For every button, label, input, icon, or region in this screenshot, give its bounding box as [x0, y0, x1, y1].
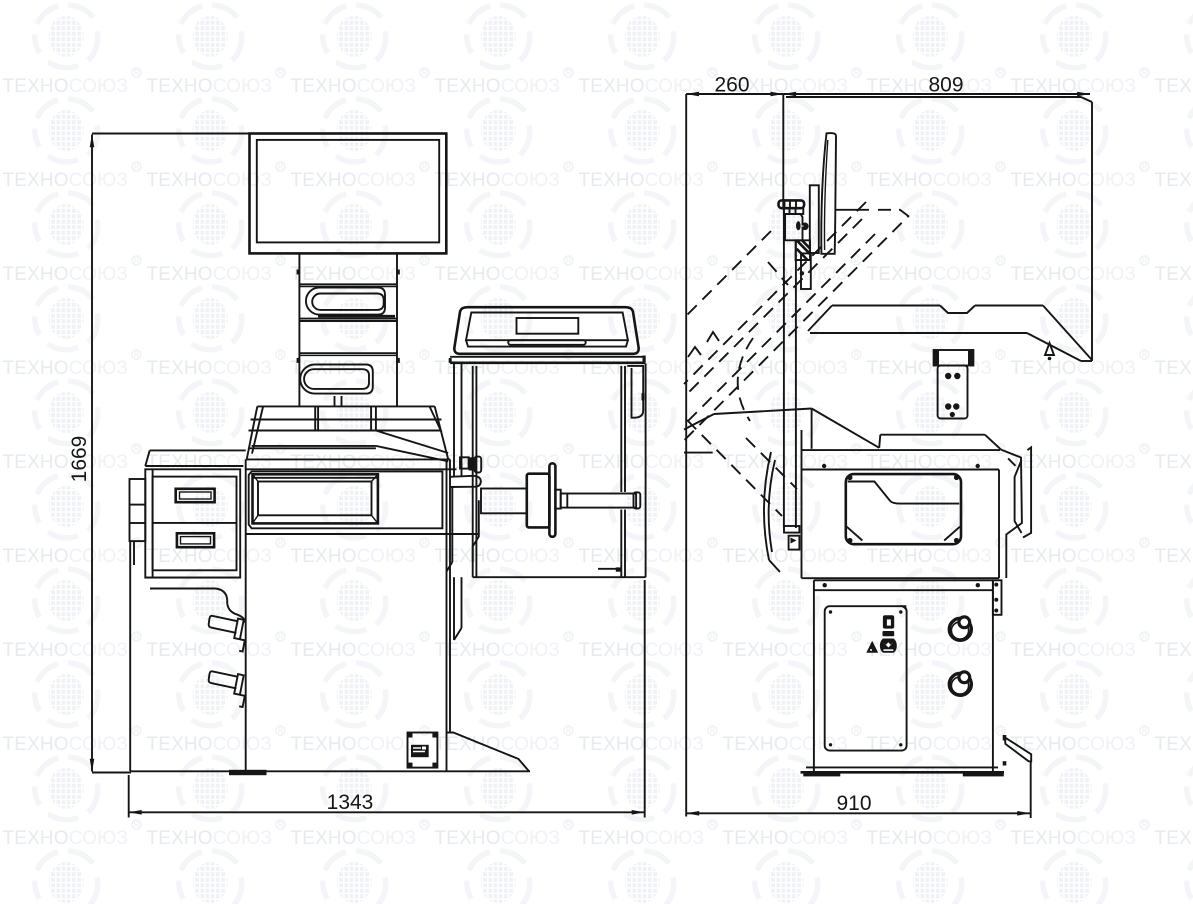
svg-text:910: 910: [836, 792, 871, 815]
svg-text:260: 260: [714, 74, 749, 97]
svg-text:809: 809: [928, 74, 963, 97]
svg-text:1343: 1343: [327, 791, 374, 814]
svg-text:1669: 1669: [68, 436, 91, 483]
